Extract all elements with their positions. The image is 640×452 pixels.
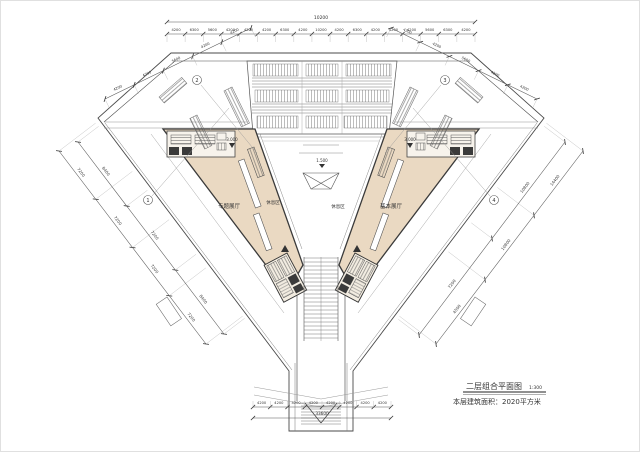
dim-top-segments: 4200630056004200420042006300420010200420… [165,28,477,42]
svg-text:14400: 14400 [549,173,561,187]
building-outline [98,53,544,431]
svg-text:7200: 7200 [76,167,86,178]
svg-text:6300: 6300 [190,28,200,32]
svg-text:4200: 4200 [335,28,345,32]
drawing-title: 二层组合平面图 [466,381,522,391]
svg-text:4200: 4200 [371,28,381,32]
area-note: 本层建筑面积：2020平方米 [453,397,541,406]
svg-text:6300: 6300 [353,28,363,32]
svg-text:7200: 7200 [150,263,160,274]
level-right: 3.000 [404,137,416,142]
svg-text:4200: 4200 [262,28,272,32]
svg-text:10800: 10800 [500,238,512,252]
svg-text:4200: 4200 [292,401,302,405]
svg-text:10200: 10200 [314,15,328,21]
terrace-feature [156,297,181,326]
svg-text:4200: 4200 [378,401,388,405]
svg-text:8400: 8400 [101,166,111,177]
svg-text:4200: 4200 [343,401,353,405]
amphitheater-steps [247,61,397,141]
void-symbol [303,173,339,189]
svg-text:8400: 8400 [198,294,208,305]
svg-text:10800: 10800 [519,180,531,194]
right-half [335,77,538,431]
level-center: 1.500 [316,158,328,163]
svg-text:4200: 4200 [257,401,267,405]
grid-bubble-4: 4 [492,198,495,204]
svg-text:6300: 6300 [443,28,453,32]
svg-text:4200: 4200 [361,401,371,405]
floor-plan-canvas: 专题展厅 休息区 休息区 基本展厅 3.000 3.000 1.500 1 2 … [0,0,640,452]
svg-text:6300: 6300 [280,28,290,32]
step-lines-1 [252,78,392,87]
dim-top-overall: 10200 [165,15,477,24]
svg-text:10200: 10200 [315,28,327,32]
svg-text:4200: 4200 [461,28,471,32]
grid-bubble-2: 2 [195,78,198,84]
svg-text:4200: 4200 [171,28,181,32]
svg-text:5600: 5600 [425,28,435,32]
grid-bubble-3: 3 [443,78,446,84]
level-left: 3.000 [226,137,238,142]
room-label-right-hall: 基本展厅 [380,202,403,210]
svg-text:7200: 7200 [447,278,457,289]
title-block: 二层组合平面图 1:300 本层建筑面积：2020平方米 [453,381,546,406]
grid-bubble-1: 1 [146,198,149,204]
svg-text:4500: 4500 [452,303,462,314]
svg-text:4200: 4200 [309,401,319,405]
side-stair-strip-1 [224,87,250,127]
drawing-scale: 1:300 [529,385,542,391]
stair-treads [304,258,338,338]
left-half [104,77,307,431]
svg-text:4200: 4200 [298,28,308,32]
edge-stair-strip [159,77,187,103]
step-lines-2 [252,104,392,113]
room-label-left-hall: 专题展厅 [218,202,241,210]
svg-text:33600: 33600 [315,411,329,416]
dim-bottom-segments: 42004200420042004200420042004200 [251,401,393,409]
svg-text:7200: 7200 [113,215,123,226]
svg-text:4200: 4200 [274,401,284,405]
svg-text:4200: 4200 [244,28,254,32]
svg-text:7200: 7200 [150,230,160,241]
svg-text:5600: 5600 [208,28,218,32]
room-label-right-rest: 休息区 [331,203,345,210]
dim-bottom-overall: 33600 [251,411,393,420]
svg-text:7200: 7200 [186,311,196,322]
floor-plan-svg: 专题展厅 休息区 休息区 基本展厅 3.000 3.000 1.500 1 2 … [1,1,640,452]
svg-text:4200: 4200 [326,401,336,405]
room-label-left-rest: 休息区 [266,199,280,206]
